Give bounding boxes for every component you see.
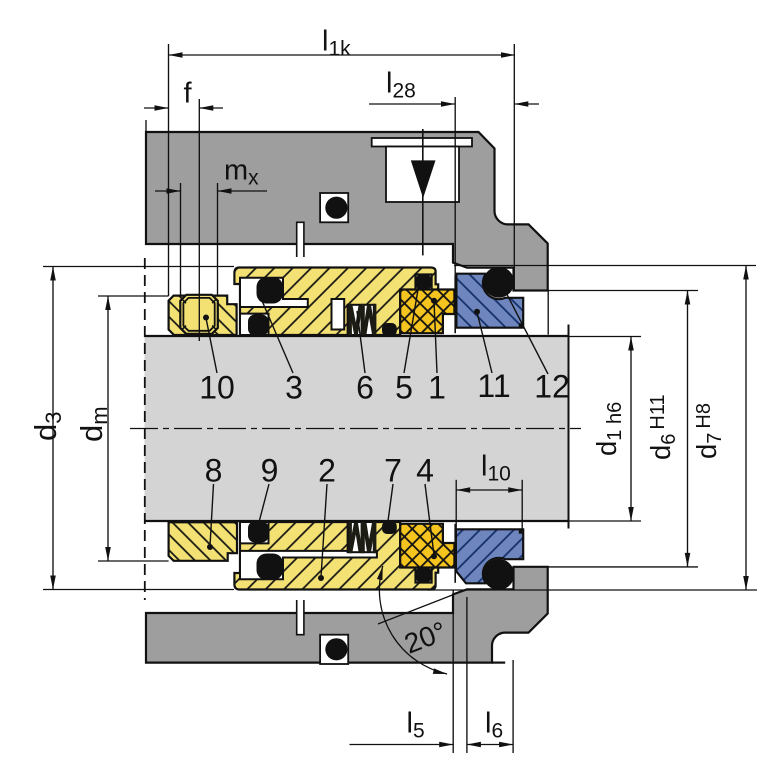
svg-text:8: 8	[205, 453, 223, 489]
svg-text:6: 6	[356, 370, 374, 406]
svg-text:5: 5	[395, 370, 413, 406]
svg-text:11: 11	[477, 368, 510, 404]
svg-text:12: 12	[534, 369, 570, 405]
svg-text:10: 10	[199, 370, 235, 406]
svg-text:1: 1	[428, 370, 446, 406]
svg-text:2: 2	[318, 453, 336, 489]
svg-text:7: 7	[384, 453, 402, 489]
svg-text:3: 3	[285, 370, 303, 406]
svg-text:f: f	[184, 78, 193, 110]
svg-text:9: 9	[261, 453, 279, 489]
svg-text:4: 4	[416, 453, 434, 489]
